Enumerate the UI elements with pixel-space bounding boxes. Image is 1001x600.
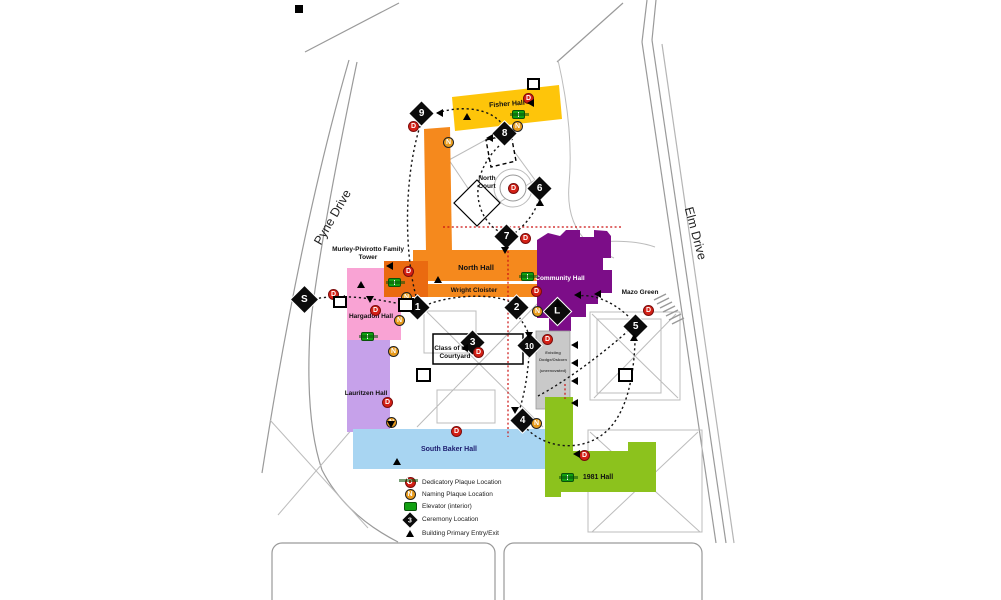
legend-label: Dedicatory Plaque Location [422,479,502,486]
naming-plaque: N [532,306,543,317]
entry-triangle [393,458,401,465]
entry-triangle [387,421,395,428]
dedicatory-plaque: D [408,121,419,132]
dedicatory-plaque: D [520,233,531,244]
dedicatory-plaque: D [382,397,393,408]
route-arrow [554,300,562,307]
stage-square [398,298,414,312]
dedicatory-plaque: D [542,334,553,345]
route-arrow [486,134,493,142]
dedicatory-plaque: D [508,183,519,194]
entry-triangle [573,450,580,458]
elevator-icon [512,110,525,119]
legend-row-dedicatory: D Dedicatory Plaque Location [402,477,552,487]
route-arrow [525,332,533,339]
ceremony-diamond-icon: 3 [402,512,417,527]
route-arrow [536,199,544,206]
entry-triangle-icon [406,530,414,537]
legend: D Dedicatory Plaque Location N Naming Pl… [402,477,552,540]
entry-triangle [511,407,519,414]
route-arrow [463,113,471,120]
entry-triangle [571,341,578,349]
dedicatory-plaque: D [370,305,381,316]
route-arrow [630,334,638,341]
naming-plaque: N [394,315,405,326]
elevator-icon [404,502,417,511]
label-south-baker-hall: South Baker Hall [414,446,484,454]
naming-plaque: N [388,346,399,357]
dedicatory-plaque: D [473,347,484,358]
legend-label: Ceremony Location [422,516,478,523]
map-mark-square [295,5,303,13]
stage-square [527,78,540,90]
route-arrow [461,344,468,352]
dedicatory-plaque: D [579,450,590,461]
entry-triangle [386,262,393,270]
legend-row-entry: Building Primary Entry/Exit [402,528,552,538]
label-dodge-line3: (unrenovated) [538,368,568,373]
elevator-icon [361,332,374,341]
label-1981-hall: 1981 Hall [578,474,618,482]
dedicatory-plaque: D [643,305,654,316]
building-lauritzen-hall [347,340,390,432]
legend-row-ceremony: 3 Ceremony Location [402,513,552,526]
entry-triangle [594,290,601,298]
route-arrow [436,109,443,117]
label-murley-tower: Murley-Pivirotto Family Tower [331,246,405,262]
entry-triangle [366,296,374,303]
naming-plaque: N [512,121,523,132]
naming-plaque: N [531,418,542,429]
label-north-hall: North Hall [446,263,506,272]
label-dodge-line2: Dodge/Osborn [538,357,568,362]
label-dodge-line1: Existing [538,350,568,355]
dedicatory-plaque: D [531,286,542,297]
entry-triangle [357,281,365,288]
label-north-court: North Court [469,175,505,191]
elevator-icon [388,278,401,287]
entry-triangle [571,399,578,407]
route-arrow [574,291,581,299]
route-arrow [501,247,509,254]
elevator-icon [521,272,534,281]
label-wright-cloister: Wright Cloister [444,287,504,295]
label-community-hall: Community Hall [535,275,585,283]
entry-triangle [571,377,578,385]
dedicatory-plaque: D [451,426,462,437]
elevator-icon [561,473,574,482]
entry-triangle [434,276,442,283]
campus-map: Pyne Drive Elm Drive Fisher Hall North C… [0,0,1001,600]
legend-row-naming: N Naming Plaque Location [402,489,552,499]
naming-plaque: N [443,137,454,148]
legend-label: Naming Plaque Location [422,491,493,498]
stage-square [416,368,431,382]
stage-square [333,296,347,308]
entry-triangle [527,99,534,107]
legend-row-elevator: Elevator (interior) [402,501,552,511]
naming-plaque-icon: N [405,489,416,500]
legend-label: Elevator (interior) [422,503,472,510]
label-lauritzen-hall: Lauritzen Hall [342,390,390,398]
stage-square [618,368,633,382]
legend-label: Building Primary Entry/Exit [422,530,499,537]
label-mazo-green: Mazo Green [612,289,668,297]
entry-triangle [571,359,578,367]
dedicatory-plaque: D [403,266,414,277]
